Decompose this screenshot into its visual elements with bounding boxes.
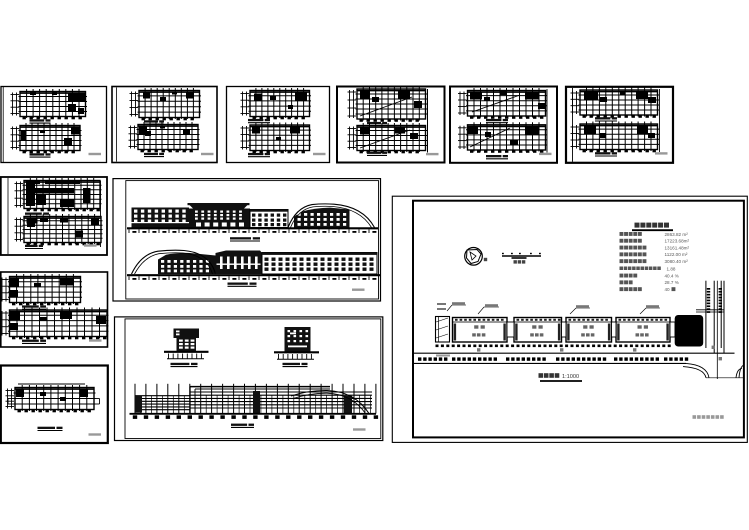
svg-text:1:1000: 1:1000 bbox=[562, 374, 579, 380]
svg-text:40.4 %: 40.4 % bbox=[665, 273, 679, 278]
svg-text:13161.48m²: 13161.48m² bbox=[665, 245, 690, 250]
svg-text:28.7 %: 28.7 % bbox=[665, 280, 679, 285]
svg-text:1.88: 1.88 bbox=[667, 266, 676, 271]
svg-text:3080.40 m²: 3080.40 m² bbox=[665, 259, 689, 264]
svg-text:40: 40 bbox=[665, 287, 671, 292]
svg-text:2863.82 m²: 2863.82 m² bbox=[665, 232, 689, 237]
svg-text:17223.68m²: 17223.68m² bbox=[665, 239, 690, 244]
svg-text:1122.00 m²: 1122.00 m² bbox=[665, 252, 688, 257]
